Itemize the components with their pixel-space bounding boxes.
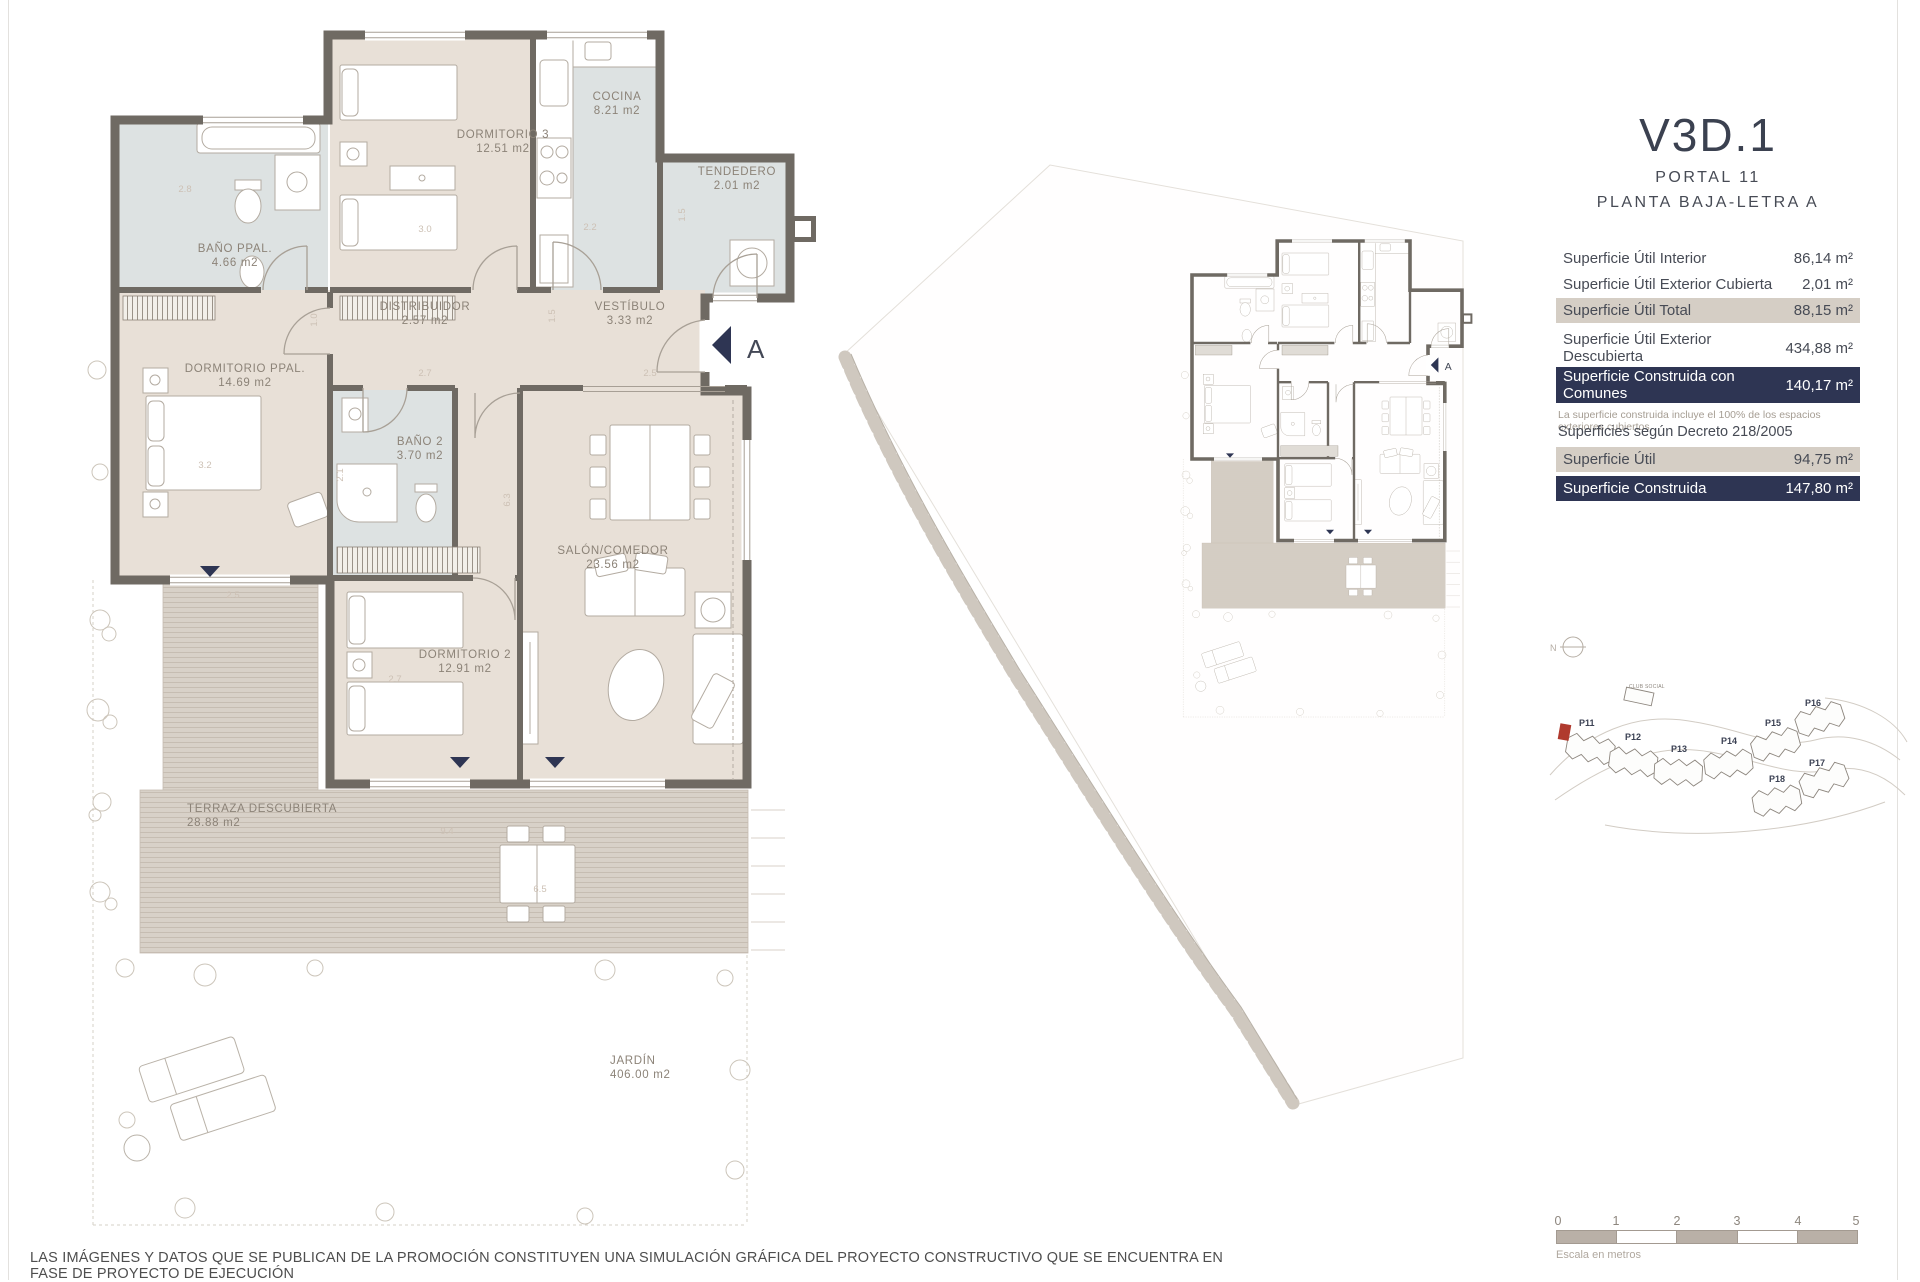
row-value: 140,17 m² — [1785, 377, 1853, 394]
svg-text:6.5: 6.5 — [533, 884, 546, 895]
scale-bar: 0 1 2 3 4 5 Escala en metros — [1556, 1214, 1858, 1261]
toilet — [235, 180, 261, 223]
svg-text:3.0: 3.0 — [418, 224, 431, 235]
svg-text:P15: P15 — [1765, 718, 1781, 728]
svg-text:2.7: 2.7 — [418, 368, 431, 379]
table-row: Superficie Útil Exterior Cubierta 2,01 m… — [1556, 272, 1860, 297]
surface-table: Superficie Útil Interior 86,14 m² Superf… — [1556, 246, 1860, 433]
chaise-longue — [690, 634, 743, 744]
svg-text:14.69 m2: 14.69 m2 — [218, 377, 271, 389]
svg-text:28.88 m2: 28.88 m2 — [187, 817, 240, 829]
bed-single — [340, 195, 457, 250]
shower — [337, 464, 397, 522]
svg-text:12.51 m2: 12.51 m2 — [476, 143, 529, 155]
disclaimer-text: LAS IMÁGENES Y DATOS QUE SE PUBLICAN DE … — [30, 1250, 1230, 1282]
table-row-highlight-beige: Superficie Útil Total 88,15 m² — [1556, 298, 1860, 323]
svg-text:COCINA: COCINA — [593, 91, 642, 103]
svg-text:P18: P18 — [1769, 774, 1785, 784]
window — [203, 115, 303, 126]
svg-text:P17: P17 — [1809, 758, 1825, 768]
hob — [537, 138, 571, 198]
lounge-chairs — [138, 1030, 276, 1146]
bed-single — [347, 682, 463, 735]
svg-text:DORMITORIO PPAL.: DORMITORIO PPAL. — [185, 363, 306, 375]
svg-text:12.91 m2: 12.91 m2 — [438, 663, 491, 675]
window — [742, 440, 753, 560]
svg-text:CLUB SOCIAL: CLUB SOCIAL — [1629, 684, 1665, 690]
window — [547, 30, 647, 41]
bathtub — [197, 123, 320, 153]
svg-text:1.5: 1.5 — [677, 208, 688, 221]
vanity-sink — [275, 155, 320, 210]
table-row: Superficie Útil Interior 86,14 m² — [1556, 246, 1860, 271]
svg-text:DORMITORIO 2: DORMITORIO 2 — [419, 649, 511, 661]
svg-text:2.2: 2.2 — [583, 222, 596, 233]
north-label: N — [1550, 643, 1557, 653]
table-row-highlight-navy: Superficie Construida con Comunes 140,17… — [1556, 367, 1860, 403]
side-table — [695, 592, 731, 628]
unit-code: V3D.1 — [1556, 108, 1860, 162]
svg-text:23.56 m2: 23.56 m2 — [586, 559, 639, 571]
row-label: Superficie Útil Total — [1563, 302, 1691, 319]
svg-text:BAÑO PPAL.: BAÑO PPAL. — [198, 242, 272, 255]
table-row: Superficie Útil Exterior Descubierta 434… — [1556, 330, 1860, 366]
scale-bar-segments — [1556, 1230, 1858, 1244]
row-label: Superficie Construida con Comunes — [1563, 368, 1785, 402]
scale-ticks: 0 1 2 3 4 5 — [1556, 1214, 1858, 1230]
site-location-map: CLUB SOCIAL P11 P12 P13 P14 P15 P16 P17 … — [1545, 680, 1915, 845]
svg-text:JARDÍN: JARDÍN — [610, 1054, 656, 1067]
row-label: Superficie Útil — [1563, 451, 1656, 468]
row-value: 2,01 m² — [1802, 276, 1853, 293]
svg-text:3.70 m2: 3.70 m2 — [397, 450, 443, 462]
row-value: 88,15 m² — [1794, 302, 1853, 319]
svg-text:3.2: 3.2 — [198, 460, 211, 471]
svg-text:3.33 m2: 3.33 m2 — [607, 315, 653, 327]
svg-text:DORMITORIO 3: DORMITORIO 3 — [457, 129, 549, 141]
entrance-arrow-icon — [712, 326, 731, 364]
sliding-door — [170, 575, 290, 586]
svg-text:1.5: 1.5 — [547, 309, 558, 322]
main-floorplan: A BAÑO PPAL. 4.66 m2 DORMITORIO 3 12.51 … — [85, 20, 855, 1235]
site-plan — [835, 155, 1475, 1145]
svg-text:2.7: 2.7 — [388, 674, 401, 685]
north-compass-icon: N — [1548, 634, 1592, 662]
entrance-letter: A — [747, 334, 765, 364]
table-row-highlight-beige: Superficie Útil 94,75 m² — [1556, 447, 1860, 472]
svg-text:DISTRIBUIDOR: DISTRIBUIDOR — [380, 301, 471, 313]
toilet — [415, 484, 437, 522]
svg-text:4.66 m2: 4.66 m2 — [212, 257, 258, 269]
row-label: Superficie Construida — [1563, 480, 1706, 497]
table-row-highlight-navy: Superficie Construida 147,80 m² — [1556, 476, 1860, 501]
nightstand — [340, 142, 367, 166]
svg-text:1.0: 1.0 — [309, 313, 320, 326]
portal-label: PORTAL 11 — [1556, 169, 1860, 187]
row-label: Superficie Útil Interior — [1563, 250, 1706, 267]
nightstand — [347, 652, 372, 678]
sliding-door — [530, 779, 665, 790]
row-label: Superficie Útil Exterior Cubierta — [1563, 276, 1772, 293]
window — [713, 293, 757, 304]
page-frame-right — [1897, 0, 1898, 1280]
scale-caption: Escala en metros — [1556, 1249, 1858, 1261]
svg-text:P11: P11 — [1579, 718, 1595, 728]
svg-text:2.57 m2: 2.57 m2 — [402, 315, 448, 327]
nightstand — [143, 492, 168, 517]
bed-single — [340, 65, 457, 120]
svg-text:P12: P12 — [1625, 732, 1641, 742]
svg-text:2.8: 2.8 — [178, 184, 191, 195]
dresser — [390, 166, 455, 190]
tv-unit — [522, 632, 538, 744]
planta-label: PLANTA BAJA-LETRA A — [1556, 194, 1860, 212]
svg-text:VESTÍBULO: VESTÍBULO — [595, 300, 666, 313]
row-label: Superficie Útil Exterior Descubierta — [1563, 331, 1785, 365]
sliding-door — [370, 779, 470, 790]
bed-double — [146, 396, 261, 490]
row-value: 86,14 m² — [1794, 250, 1853, 267]
svg-text:9.4: 9.4 — [440, 826, 453, 837]
svg-text:2.5: 2.5 — [226, 590, 239, 601]
svg-text:SALÓN/COMEDOR: SALÓN/COMEDOR — [557, 544, 668, 557]
svg-text:406.00 m2: 406.00 m2 — [610, 1069, 671, 1081]
svg-text:8.21 m2: 8.21 m2 — [594, 105, 640, 117]
svg-text:6.3: 6.3 — [502, 493, 513, 506]
svg-text:2.1: 2.1 — [335, 468, 346, 481]
nightstand — [143, 368, 168, 393]
info-panel-header: V3D.1 PORTAL 11 PLANTA BAJA-LETRA A — [1556, 108, 1860, 212]
decree-section: Superficies según Decreto 218/2005 Super… — [1556, 424, 1860, 502]
row-value: 434,88 m² — [1785, 340, 1853, 357]
svg-text:BAÑO 2: BAÑO 2 — [397, 435, 443, 448]
svg-text:P16: P16 — [1805, 698, 1821, 708]
bed-single — [347, 592, 463, 648]
washing-machine — [730, 240, 774, 286]
row-value: 94,75 m² — [1794, 451, 1853, 468]
row-value: 147,80 m² — [1785, 480, 1853, 497]
decree-title: Superficies según Decreto 218/2005 — [1556, 424, 1860, 440]
svg-text:P13: P13 — [1671, 744, 1687, 754]
entrance-opening — [700, 320, 711, 372]
svg-text:2.01 m2: 2.01 m2 — [714, 180, 760, 192]
sink — [342, 398, 368, 432]
svg-text:2.5: 2.5 — [643, 368, 656, 379]
window — [365, 30, 465, 41]
svg-text:TENDEDERO: TENDEDERO — [698, 166, 776, 178]
club-building — [1624, 687, 1654, 706]
svg-text:P14: P14 — [1721, 736, 1737, 746]
svg-text:TERRAZA DESCUBIERTA: TERRAZA DESCUBIERTA — [187, 803, 337, 815]
page-frame-left — [8, 0, 9, 1280]
